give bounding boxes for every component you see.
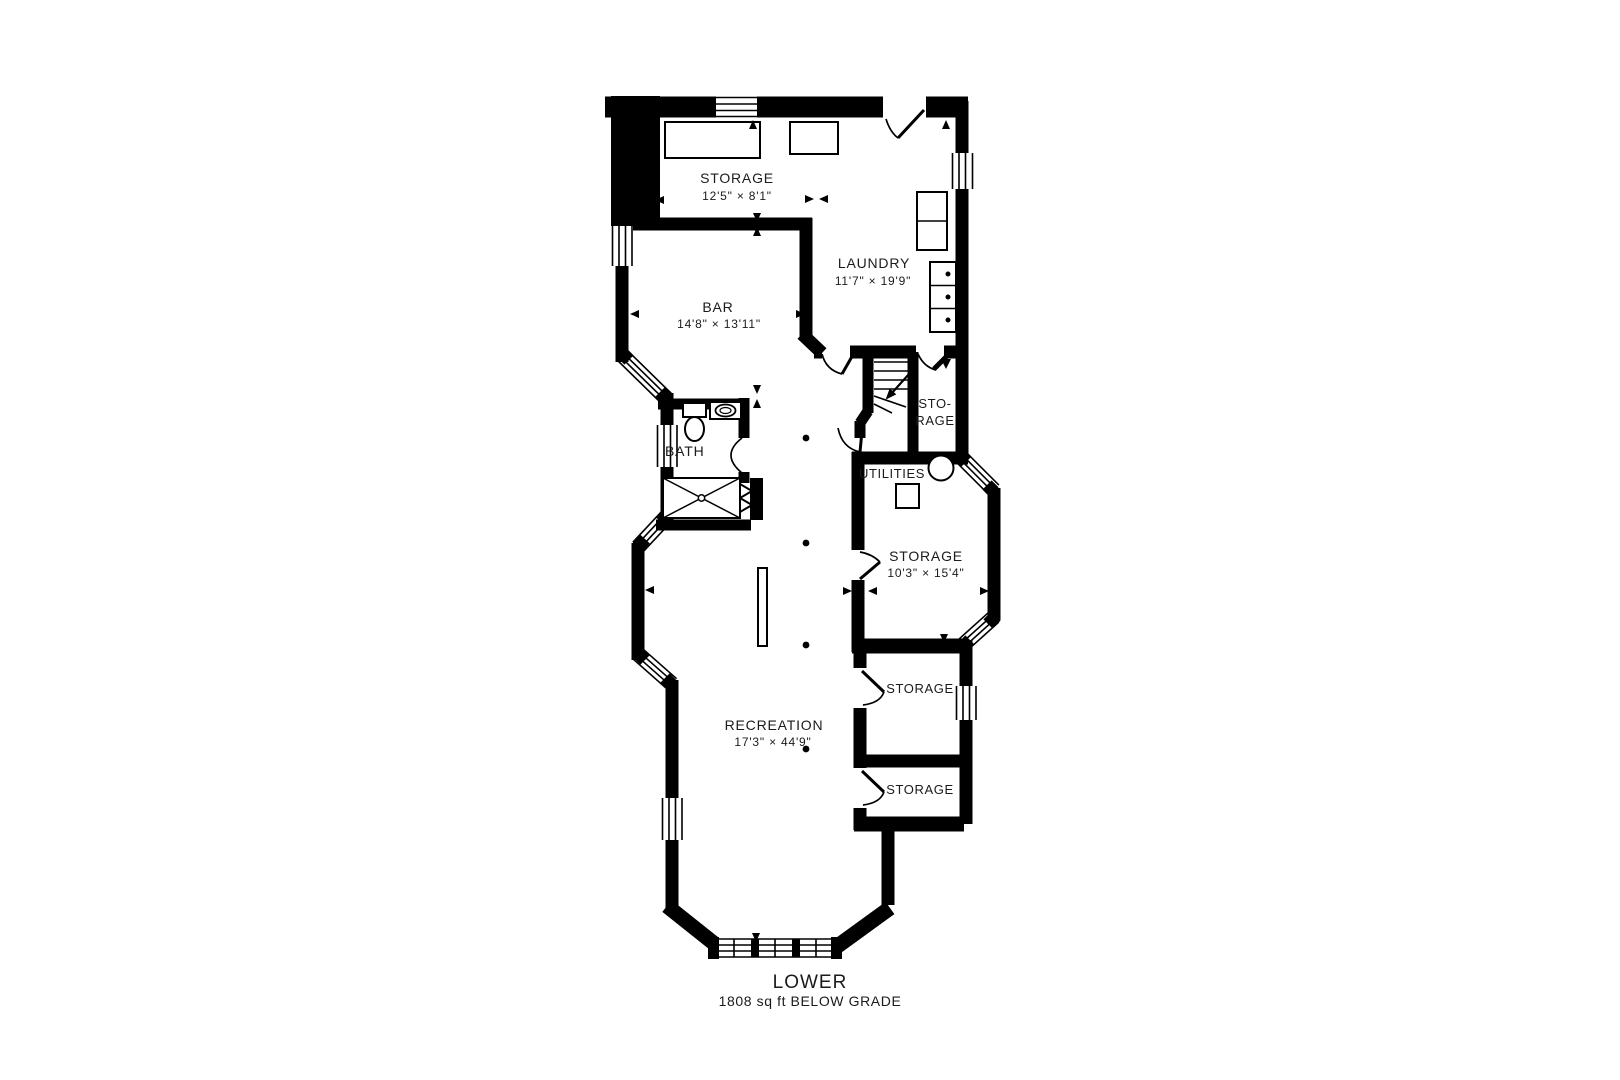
door-storage-lower-2 xyxy=(862,771,884,805)
floor-plan: STORAGE 12'5" × 8'1" LAUNDRY 11'7" × 19'… xyxy=(0,0,1620,1080)
room-label-storage-stairs-1: STO- xyxy=(918,396,951,411)
door-bath xyxy=(731,438,742,473)
room-label-storage-lower-2: STORAGE xyxy=(886,782,954,797)
plan-title: LOWER xyxy=(773,972,848,993)
dim-arrow xyxy=(843,587,852,595)
door-storage-middle xyxy=(860,552,880,579)
window-storage-right xyxy=(955,686,977,720)
washer-dryer xyxy=(917,192,947,250)
room-label-utilities: UTILITIES xyxy=(859,466,925,481)
window-top xyxy=(716,96,757,118)
dim-arrow xyxy=(819,195,828,203)
room-dims-storage-top: 12'5" × 8'1" xyxy=(702,189,772,203)
dim-arrow xyxy=(942,120,950,129)
room-dims-storage-middle: 10'3" × 15'4" xyxy=(887,566,964,580)
toilet xyxy=(683,403,706,441)
room-label-laundry: LAUNDRY xyxy=(838,255,910,271)
room-label-bath: BATH xyxy=(665,443,705,459)
support-columns xyxy=(803,435,810,753)
storage-counter-1 xyxy=(665,122,760,158)
dim-arrow xyxy=(805,195,814,203)
room-label-bar: BAR xyxy=(702,299,733,315)
room-dims-recreation: 17'3" × 44'9" xyxy=(734,735,811,749)
shower-jamb xyxy=(750,478,763,520)
dim-arrow xyxy=(868,587,877,595)
door-top-entry xyxy=(886,110,924,138)
door-storage-lower-1 xyxy=(862,671,884,705)
room-label-recreation: RECREATION xyxy=(725,717,824,733)
room-label-storage-top: STORAGE xyxy=(700,170,774,186)
room-label-storage-stairs-2: RAGE xyxy=(915,413,954,428)
dim-arrow xyxy=(645,586,654,594)
laundry-sink xyxy=(930,262,956,332)
caption: LOWER 1808 sq ft BELOW GRADE xyxy=(719,972,902,1009)
door-bar-hall xyxy=(822,353,854,374)
dim-arrow xyxy=(630,310,639,318)
dim-arrow xyxy=(753,385,761,394)
room-label-storage-lower-1: STORAGE xyxy=(886,681,954,696)
stairs-direction-line xyxy=(891,374,909,394)
water-heater xyxy=(929,456,954,481)
storage-counter-2 xyxy=(790,122,838,154)
furnace xyxy=(896,484,919,508)
support-beam xyxy=(758,568,767,646)
stairs xyxy=(874,362,909,413)
room-dims-bar: 14'8" × 13'11" xyxy=(677,317,761,331)
plan-subtitle: 1808 sq ft BELOW GRADE xyxy=(719,993,902,1009)
room-dims-laundry: 11'7" × 19'9" xyxy=(835,274,911,288)
dim-arrow xyxy=(753,399,761,408)
window-bar-left xyxy=(611,226,633,266)
chimney-block xyxy=(611,96,660,228)
room-label-storage-middle: STORAGE xyxy=(889,548,963,564)
floor-plan-page: STORAGE 12'5" × 8'1" LAUNDRY 11'7" × 19'… xyxy=(0,0,1620,1080)
shower xyxy=(663,478,740,518)
window-laundry-right xyxy=(951,153,974,189)
window-bay-bottom xyxy=(708,937,842,959)
bath-sink xyxy=(710,402,741,419)
window-rec-left xyxy=(661,798,683,840)
